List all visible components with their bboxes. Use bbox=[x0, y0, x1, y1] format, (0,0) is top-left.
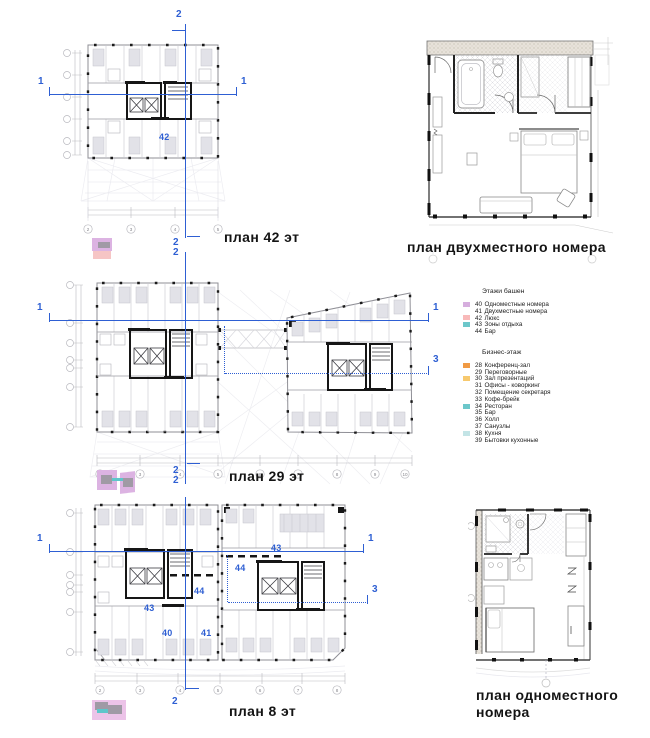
svg-text:5: 5 bbox=[217, 472, 220, 477]
section-line-3 bbox=[224, 326, 225, 374]
legend: Этажи башен 40Одноместные номера 41Двухм… bbox=[461, 288, 646, 444]
section-line-3 bbox=[228, 602, 368, 603]
section-line-1 bbox=[49, 551, 364, 552]
single-room-title-line1: план одноместного bbox=[476, 687, 618, 703]
section-mark-1-right: 1 bbox=[368, 534, 374, 544]
section-mark-2: 2 bbox=[173, 248, 179, 258]
section-tick bbox=[187, 463, 200, 464]
svg-text:10: 10 bbox=[402, 472, 408, 477]
legend-swatch bbox=[463, 404, 470, 409]
floor-plan-8-drawing: 2 3 4 5 6 7 8 bbox=[30, 498, 400, 703]
plan-29-title: план 29 эт bbox=[229, 468, 304, 484]
double-room-plan-drawing bbox=[425, 35, 615, 265]
svg-text:7: 7 bbox=[297, 688, 300, 693]
section-line-1 bbox=[49, 320, 429, 321]
single-room-title-line2: номера bbox=[476, 704, 530, 720]
legend-swatch bbox=[463, 322, 470, 327]
section-tick bbox=[187, 236, 200, 237]
floor-plan-29-drawing: 2 3 4 5 6 7 8 9 10 bbox=[30, 272, 445, 492]
svg-text:3: 3 bbox=[139, 688, 142, 693]
key-plan-thumbnail-8 bbox=[92, 700, 126, 720]
key-plan-thumbnail-42 bbox=[92, 238, 114, 260]
section-tick bbox=[367, 595, 368, 604]
section-line-2 bbox=[185, 252, 186, 484]
legend-group-title: Этажи башен bbox=[482, 288, 646, 295]
plan-8-title: план 8 эт bbox=[229, 703, 296, 719]
legend-group-title: Бизнес-этаж bbox=[482, 349, 646, 356]
legend-item-label: Бар bbox=[485, 328, 496, 335]
section-line-3 bbox=[225, 373, 429, 374]
section-line-3 bbox=[227, 555, 228, 602]
section-mark-3-right: 3 bbox=[433, 355, 439, 365]
room-label-42: 42 bbox=[159, 133, 169, 142]
legend-item-num: 39 bbox=[475, 437, 482, 444]
legend-item-num: 44 bbox=[475, 328, 482, 335]
room-label-44: 44 bbox=[235, 564, 245, 573]
legend-swatch bbox=[463, 376, 470, 381]
floor-plan-42-drawing: 2 3 4 5 bbox=[55, 5, 270, 235]
svg-text:8: 8 bbox=[336, 688, 339, 693]
key-plan-thumbnail-29 bbox=[97, 470, 137, 495]
room-label-44: 44 bbox=[194, 587, 204, 596]
double-room-plan-title: план двухместного номера bbox=[407, 239, 606, 255]
grid-bubble-label: 3 bbox=[130, 227, 133, 232]
plan-42-title: план 42 эт bbox=[224, 229, 299, 245]
section-line-1 bbox=[49, 94, 237, 95]
legend-item: 39Бытовки кухонные bbox=[461, 437, 646, 444]
svg-text:8: 8 bbox=[336, 472, 339, 477]
legend-item-label: Бытовки кухонные bbox=[485, 437, 539, 444]
legend-swatch bbox=[463, 363, 470, 368]
legend-swatch bbox=[463, 431, 470, 436]
svg-text:9: 9 bbox=[374, 472, 377, 477]
section-mark-1-left: 1 bbox=[37, 534, 43, 544]
section-mark-1-left: 1 bbox=[38, 77, 44, 87]
section-tick bbox=[428, 366, 429, 375]
section-tick bbox=[186, 688, 199, 689]
room-label-43: 43 bbox=[144, 604, 154, 613]
grid-bubble-label: 5 bbox=[217, 227, 220, 232]
legend-swatch bbox=[463, 302, 470, 307]
section-tick bbox=[172, 30, 185, 31]
section-mark-2-top: 2 bbox=[176, 10, 182, 20]
legend-group-business: Бизнес-этаж 28Конференц-зал 29Переговорн… bbox=[461, 349, 646, 444]
section-mark-3-right: 3 bbox=[372, 585, 378, 595]
svg-text:4: 4 bbox=[179, 688, 182, 693]
svg-text:6: 6 bbox=[259, 688, 262, 693]
svg-text:2: 2 bbox=[99, 688, 102, 693]
svg-text:4: 4 bbox=[179, 472, 182, 477]
section-tick bbox=[363, 544, 364, 553]
legend-swatch bbox=[463, 315, 470, 320]
section-mark-1-left: 1 bbox=[37, 303, 43, 313]
room-label-43: 43 bbox=[271, 544, 281, 553]
grid-bubble-label: 4 bbox=[174, 227, 177, 232]
svg-text:3: 3 bbox=[139, 472, 142, 477]
section-tick bbox=[236, 87, 237, 96]
section-mark-2-bottom: 2 bbox=[172, 697, 178, 707]
single-room-plan-drawing bbox=[468, 502, 608, 692]
drawing-sheet: 2 3 4 5 bbox=[0, 0, 650, 738]
single-room-plan-title: план одноместного номера bbox=[476, 687, 626, 721]
room-label-41: 41 bbox=[201, 629, 211, 638]
section-line-2 bbox=[185, 497, 186, 690]
legend-group-towers: Этажи башен 40Одноместные номера 41Двухм… bbox=[461, 288, 646, 335]
section-mark-1-right: 1 bbox=[433, 303, 439, 313]
section-mark-2: 2 bbox=[173, 476, 179, 486]
section-mark-1-right: 1 bbox=[241, 77, 247, 87]
grid-bubble-label: 2 bbox=[87, 227, 90, 232]
svg-text:5: 5 bbox=[217, 688, 220, 693]
section-line-2 bbox=[185, 24, 186, 238]
legend-item: 44Бар bbox=[461, 328, 646, 335]
room-label-40: 40 bbox=[162, 629, 172, 638]
section-tick bbox=[428, 313, 429, 322]
